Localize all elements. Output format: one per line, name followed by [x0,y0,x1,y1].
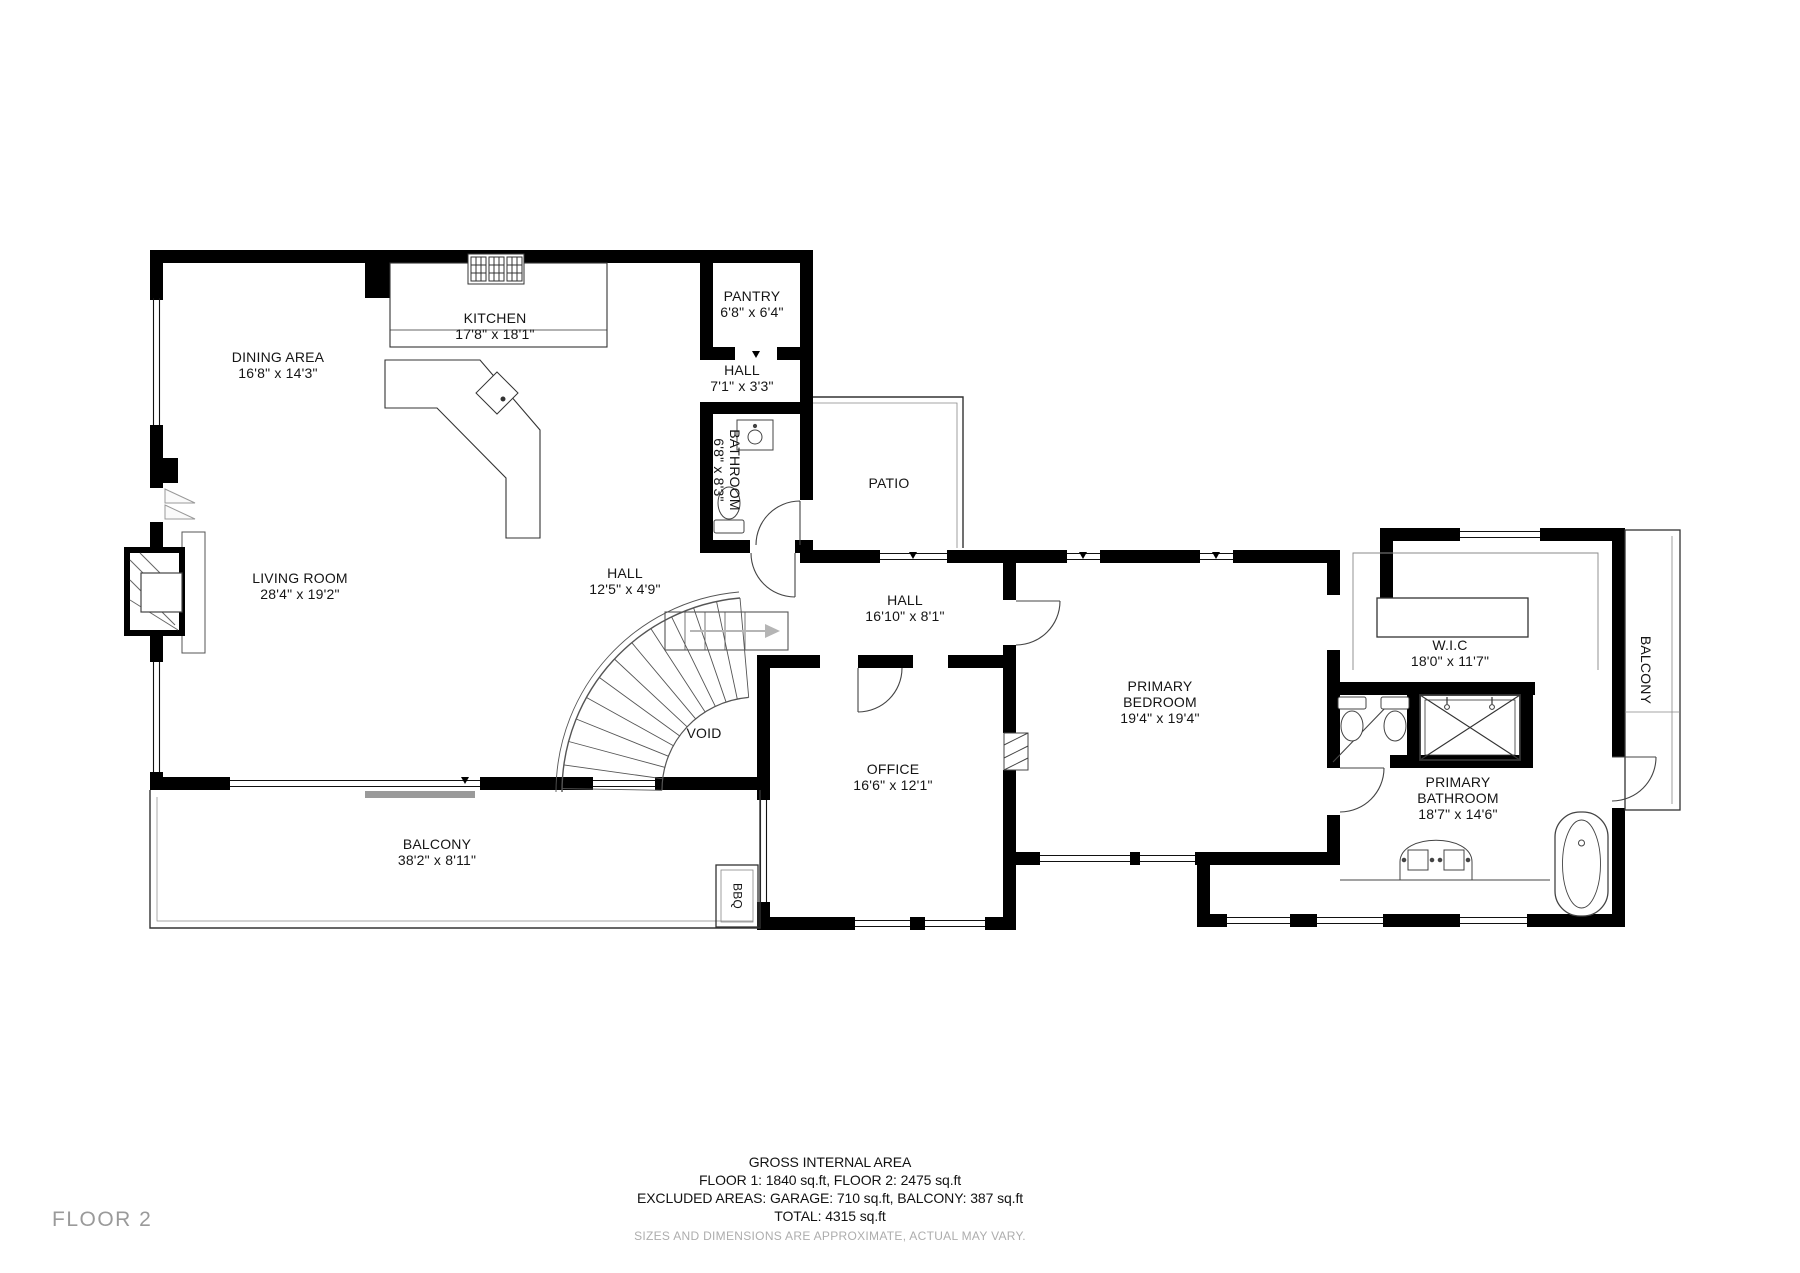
room-label-primary-bedroom: PRIMARY BEDROOM 19'4" x 19'4" [1102,678,1218,726]
sliding-door-icon [365,791,475,798]
fireplace-icon [127,532,205,653]
floor-label: FLOOR 2 [52,1208,152,1232]
shutter-icon [165,489,195,519]
room-label-balcony-bottom: BALCONY 38'2" x 8'11" [398,836,476,868]
room-label-kitchen: KITCHEN 17'8" x 18'1" [455,310,534,342]
wic-island [1377,598,1528,637]
room-label-void: VOID [686,725,721,741]
room-label-dining: DINING AREA 16'8" x 14'3" [232,349,324,381]
room-label-hall-east: HALL 16'10" x 8'1" [865,592,944,624]
area-summary-total: TOTAL: 4315 sq.ft [530,1208,1130,1224]
area-summary: GROSS INTERNAL AREA FLOOR 1: 1840 sq.ft,… [530,1152,1130,1246]
room-label-primary-bathroom: PRIMARY BATHROOM 18'7" x 14'6" [1400,774,1516,822]
vanity-icon [1340,840,1550,880]
toilet-icon [1338,697,1409,741]
room-label-hall-mid: HALL 12'5" x 4'9" [589,565,660,597]
bedroom-shelf-icon [1004,733,1028,770]
room-label-pantry: PANTRY 6'8" x 6'4" [720,288,783,320]
room-label-office: OFFICE 16'6" x 12'1" [853,761,932,793]
area-summary-title: GROSS INTERNAL AREA [530,1154,1130,1170]
room-label-wic: W.I.C 18'0" x 11'7" [1411,637,1489,669]
area-summary-floors: FLOOR 1: 1840 sq.ft, FLOOR 2: 2475 sq.ft [530,1172,1130,1188]
room-label-living: LIVING ROOM 28'4" x 19'2" [252,570,348,602]
floorplan-drawing [0,0,1800,1273]
stairs-icon [556,592,788,792]
walls [150,250,1625,930]
room-label-balcony-right: BALCONY [1638,636,1654,704]
patio-outline [813,397,963,548]
room-label-hall-upper: HALL 7'1" x 3'3" [710,362,773,394]
area-summary-excluded: EXCLUDED AREAS: GARAGE: 710 sq.ft, BALCO… [530,1190,1130,1206]
room-label-bbq: BBQ [731,883,744,909]
floorplan-page: KITCHEN 17'8" x 18'1" DINING AREA 16'8" … [0,0,1800,1273]
shower-icon [1420,695,1520,760]
room-label-patio: PATIO [869,475,910,491]
stove-icon [468,254,524,284]
room-label-bathroom: BATHROOM 6'8" x 8'3" [711,429,743,510]
bathtub-icon [1555,812,1608,916]
area-summary-disclaimer: SIZES AND DIMENSIONS ARE APPROXIMATE, AC… [530,1228,1130,1244]
